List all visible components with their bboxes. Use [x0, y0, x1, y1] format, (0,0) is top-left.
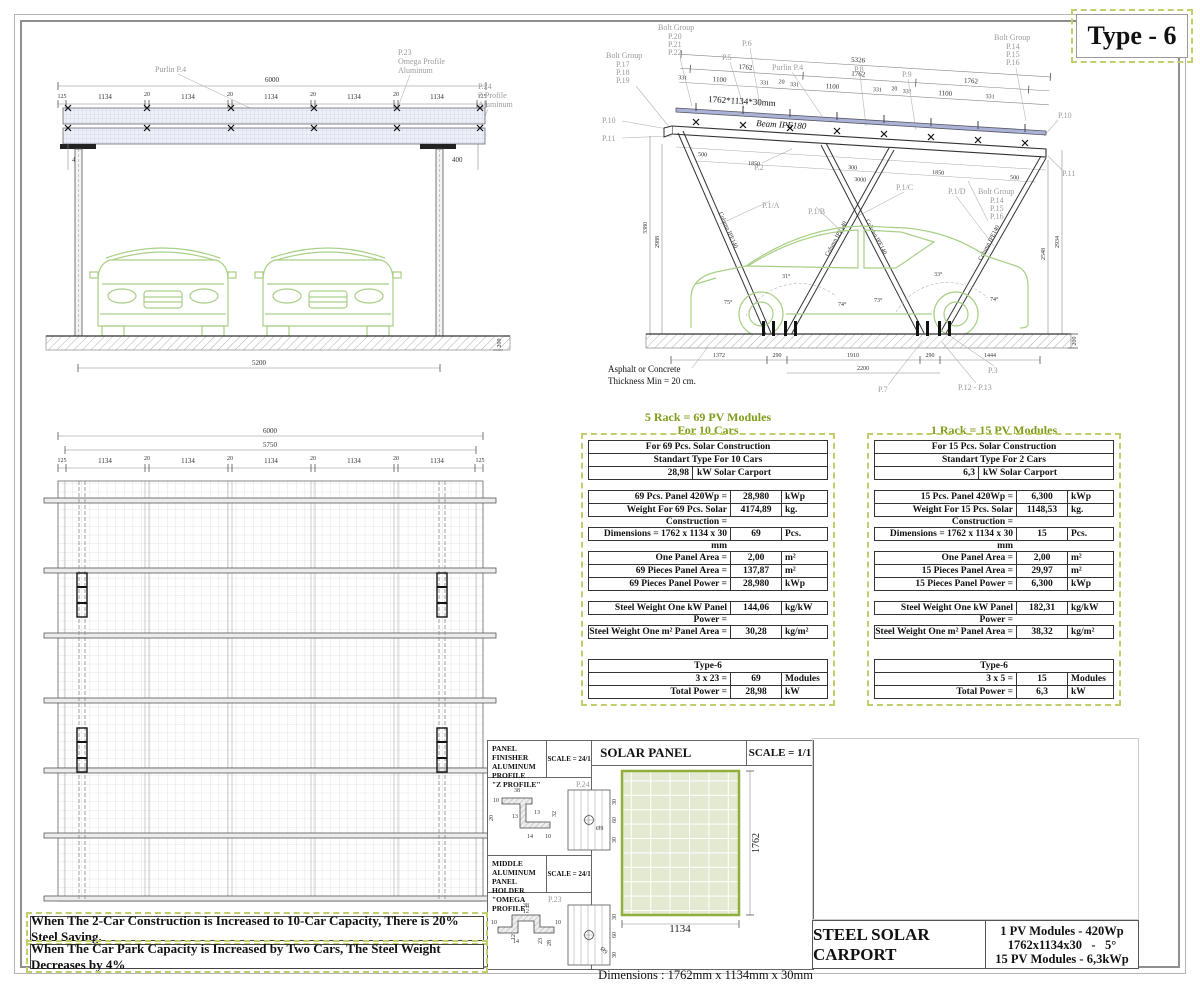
table-title: 5 Rack = 69 PV ModulesFor 10 Cars [588, 410, 828, 437]
dim-label: 14 [527, 834, 533, 840]
table-group: 15 Pcs. Panel 420Wp =6,300kWpWeight For … [874, 490, 1114, 517]
table-cell: kWp [1067, 578, 1113, 590]
ref-label: P.10 [602, 116, 616, 125]
ref-label: Bolt Group [606, 51, 642, 60]
table-cell: Total Power = [875, 686, 1016, 698]
spec-line: 1 PV Modules - 420Wp [1000, 924, 1123, 938]
beam-bracket [420, 144, 456, 149]
table-cell: kg. [781, 504, 827, 516]
front-columns [75, 149, 443, 336]
angle-label: 74° [838, 301, 847, 308]
side-bolt-groups: Bolt Group P.17 P.18 P.19 Bolt Group P.2… [606, 23, 1030, 221]
table-cell: Type-6 [589, 660, 827, 672]
ref-label: P.11 [602, 134, 615, 143]
table-group: Steel Weight One kW Panel Power =182,31k… [874, 601, 1114, 615]
table-cell: For 69 Pcs. Solar Construction [589, 441, 827, 453]
dim-label: 2200 [857, 366, 869, 372]
ref-label: P.22 [668, 48, 682, 57]
banner-text: When The Car Park Capacity is Increased … [31, 941, 483, 973]
dim-label: 1100 [938, 89, 953, 98]
front-ground [46, 336, 510, 350]
table-cell: Steel Weight One kW Panel Power = [875, 602, 1016, 614]
table-group: One Panel Area =2,00m²15 Pieces Panel Ar… [874, 551, 1114, 591]
table-cell: One Panel Area = [875, 552, 1016, 564]
dim-label: 32 [552, 811, 558, 817]
dim-label: 20 [489, 815, 495, 821]
ref-label: Bolt Group [658, 23, 694, 32]
table-cell: 29,97 [1016, 565, 1067, 577]
dim-label: 12 [523, 909, 529, 915]
dim-label: 1134 [181, 93, 195, 101]
table-cell: Dimensions = 1762 x 1134 x 30 mm [589, 528, 730, 540]
ref-label: P.10 [1058, 111, 1072, 120]
details-block: PANEL FINISHERALUMINUM PROFILE"Z PROFILE… [487, 740, 814, 970]
dim-label: 20 [393, 92, 399, 98]
table-row: Steel Weight One m² Panel Area =30,28kg/… [588, 625, 828, 639]
table-row: Standart Type For 10 Cars [588, 454, 828, 467]
table-group: One Panel Area =2,00m²69 Pieces Panel Ar… [588, 551, 828, 591]
dim-label: 331 [760, 80, 769, 87]
table-cell: 30,28 [730, 626, 781, 638]
ref-label: P.12 - P.13 [958, 383, 992, 392]
table-row: 69 Pieces Panel Power =28,980kWp [588, 578, 828, 591]
dim-label: 20 [891, 86, 897, 92]
table-group: Steel Weight One m² Panel Area =30,28kg/… [588, 625, 828, 639]
table-cell: m² [781, 552, 827, 564]
table-cell: 38,32 [1016, 626, 1067, 638]
car-front-view [90, 248, 236, 336]
ref-label: P.6 [742, 39, 752, 48]
table-cell: 2,00 [1016, 552, 1067, 564]
ref-label: P.9 [902, 70, 912, 79]
ref-label: P.19 [616, 76, 630, 85]
ref-label: Purlin P.4 [155, 65, 186, 74]
table-group: Steel Weight One kW Panel Power =144,06k… [588, 601, 828, 615]
dim-label: 125 [58, 458, 67, 464]
dim-label: 10 [555, 920, 561, 926]
table-cell: m² [1067, 552, 1113, 564]
table-cell: kWp [781, 578, 827, 590]
omega-profile-section: MIDDLE ALUMINUMPANEL HOLDER"OMEGA PROFIL… [488, 855, 591, 970]
table-cell: Steel Weight One kW Panel Power = [589, 602, 730, 614]
dim-label: 3000 [854, 177, 866, 184]
table-cell: Modules [781, 673, 827, 685]
dim-label: 331 [985, 94, 994, 101]
ref-label: P.5 [722, 53, 732, 62]
table-cell: Steel Weight One m² Panel Area = [875, 626, 1016, 638]
table-box: For 69 Pcs. Solar ConstructionStandart T… [588, 440, 828, 699]
banner-weight-decrease: When The Car Park Capacity is Increased … [30, 944, 484, 969]
side-elevation-drawing: 5326 1762 1762 1762 331 1100 331 20 331 … [596, 16, 1108, 408]
ref-label: P.23 [398, 48, 412, 57]
car-side-view [691, 226, 1028, 336]
ref-label: P.1/C [896, 183, 913, 192]
dim-label: 1134 [181, 457, 195, 465]
dim-label: 5750 [263, 441, 278, 449]
table-row: Weight For 69 Pcs. Solar Construction =4… [588, 504, 828, 517]
table-cell: 144,06 [730, 602, 781, 614]
banner-steel-saving: When The 2-Car Construction is Increased… [30, 916, 484, 941]
table-row: Total Power =28,98kW [588, 686, 828, 699]
ref-label: P.8 [854, 65, 864, 74]
dim-label: 1762 [738, 63, 753, 72]
dim-label: 331 [790, 82, 799, 89]
dim-label: 20 [310, 92, 316, 98]
car-front-view [255, 248, 401, 336]
dim-label: 20 [144, 92, 150, 98]
plan-dim-chain: 6000 5750 125 1134 20 1134 20 1134 20 11… [58, 427, 485, 472]
dim-label: 200 [1072, 337, 1078, 346]
omega-profile-scale: SCALE = 24/1 [546, 856, 591, 892]
dim-label: 1910 [847, 353, 859, 359]
table-group: Steel Weight One m² Panel Area =38,32kg/… [874, 625, 1114, 639]
table-cell: 6,3 [875, 467, 979, 479]
ref-label: P.24 [478, 82, 492, 91]
table-row: 28,98kW Solar Carport [588, 467, 828, 480]
table-row: 69 Pcs. Panel 420Wp =28,980kWp [588, 490, 828, 504]
table-69-modules: 5 Rack = 69 PV ModulesFor 10 CarsFor 69 … [588, 410, 828, 699]
angle-label: 33° [934, 271, 943, 278]
table-group: Dimensions = 1762 x 1134 x 30 mm69Pcs. [588, 527, 828, 541]
ground-note: Asphalt or Concrete [608, 364, 680, 374]
table-row: 15 Pieces Panel Area =29,97m² [874, 565, 1114, 578]
dim-label: 38 [514, 788, 520, 794]
table-row: One Panel Area =2,00m² [588, 551, 828, 565]
solar-panel-scale: SCALE = 1/1 [746, 741, 813, 765]
dim-label: 1134 [98, 457, 112, 465]
z-profile-section: PANEL FINISHERALUMINUM PROFILE"Z PROFILE… [488, 741, 591, 855]
spec-line: 1762x1134x30 - 5° [1008, 938, 1116, 952]
dim-label: 1762 [751, 833, 762, 853]
table-cell: kg/kW [781, 602, 827, 614]
solar-panel-detail: SOLAR PANEL SCALE = 1/1 1762 [592, 741, 813, 969]
table-cell: m² [1067, 565, 1113, 577]
plan-view-drawing: 6000 5750 125 1134 20 1134 20 1134 20 11… [38, 423, 502, 905]
dim-label: 290 [773, 353, 782, 359]
drawing-title: STEEL SOLAR CARPORT [813, 921, 985, 968]
dim-label: 20 [393, 456, 399, 462]
table-cell: kW [781, 686, 827, 698]
table-row: Type-6 [874, 659, 1114, 673]
dim-label: 1134 [669, 923, 691, 935]
table-cell: 15 Pieces Panel Area = [875, 565, 1016, 577]
dim-label: 1134 [264, 457, 278, 465]
table-cell: 3 x 5 = [875, 673, 1016, 685]
solar-panel-specs: Dimensions : 1762mm x 1134mm x 30mm Weig… [592, 933, 813, 969]
dim-label: 2988 [655, 236, 661, 248]
z-profile-scale: SCALE = 24/1 [546, 741, 591, 777]
table-cell: 15 Pcs. Panel 420Wp = [875, 491, 1016, 503]
z-profile-title: PANEL FINISHERALUMINUM PROFILE"Z PROFILE… [488, 741, 546, 777]
table-cell: 4174,89 [730, 504, 781, 516]
dim-label: 300 [848, 165, 857, 172]
table-cell: 3 x 23 = [589, 673, 730, 685]
table-cell: 28,980 [730, 491, 781, 503]
front-roof [60, 105, 485, 149]
table-group: Type-63 x 5 =15ModulesTotal Power =6,3kW [874, 659, 1114, 699]
table-cell: 15 Pieces Panel Power = [875, 578, 1016, 590]
table-cell: Weight For 69 Pcs. Solar Construction = [589, 504, 730, 516]
table-cell: For 15 Pcs. Solar Construction [875, 441, 1113, 453]
dim-label: 1134 [430, 457, 444, 465]
title-block: STEEL SOLAR CARPORT 1 PV Modules - 420Wp… [812, 920, 1139, 969]
table-row: Weight For 15 Pcs. Solar Construction =1… [874, 504, 1114, 517]
dim-label: 1444 [984, 353, 996, 359]
table-group: For 15 Pcs. Solar ConstructionStandart T… [874, 440, 1114, 480]
table-group: Type-63 x 23 =69ModulesTotal Power =28,9… [588, 659, 828, 699]
empty-frame [812, 738, 1139, 920]
table-row: Dimensions = 1762 x 1134 x 30 mm15Pcs. [874, 527, 1114, 541]
dim-label: 5326 [851, 56, 866, 65]
table-row: Steel Weight One kW Panel Power =182,31k… [874, 601, 1114, 615]
table-cell: 182,31 [1016, 602, 1067, 614]
panel-size-note: 1762*1134*30mm [708, 94, 776, 108]
drawing-spec-lines: 1 PV Modules - 420Wp 1762x1134x30 - 5° 1… [985, 921, 1138, 968]
table-cell: kg/kW [1067, 602, 1113, 614]
table-cell: 6,300 [1016, 578, 1067, 590]
dim-label: 1762 [964, 77, 979, 86]
angle-label: 74° [990, 296, 999, 303]
dim-label: 1134 [264, 93, 278, 101]
ref-label: P.16 [990, 212, 1004, 221]
table-cell: kW Solar Carport [693, 467, 827, 479]
dim-label: 20 [778, 79, 784, 85]
ref-label: Aluminum [398, 66, 433, 75]
table-group: 69 Pcs. Panel 420Wp =28,980kWpWeight For… [588, 490, 828, 517]
angle-label: 73° [874, 297, 883, 304]
beam-bracket [60, 144, 96, 149]
dim-label: 1850 [932, 170, 944, 177]
angle-label: 75° [724, 299, 733, 306]
table-cell: 69 Pcs. Panel 420Wp = [589, 491, 730, 503]
table-row: Standart Type For 2 Cars [874, 454, 1114, 467]
dim-label: 20 [227, 456, 233, 462]
table-15-modules: 1 Rack = 15 PV ModulesFor 15 Pcs. Solar … [874, 410, 1114, 699]
ref-label: P.16 [1006, 58, 1020, 67]
plan-panel-field [44, 481, 496, 901]
ref-label: Z Profile [478, 91, 507, 100]
ref-label: P.11 [1062, 169, 1075, 178]
table-cell: 28,98 [730, 686, 781, 698]
side-roof: 1762*1134*30mm Beam IPE180 [664, 94, 1046, 157]
drawing-sheet: Type - 6 [0, 0, 1200, 988]
table-cell: kg/m² [781, 626, 827, 638]
dim-label: 1134 [430, 93, 444, 101]
table-cell: 2,00 [730, 552, 781, 564]
ref-label: P.23 [548, 895, 562, 904]
table-cell: kWp [1067, 491, 1113, 503]
table-cell: 69 Pieces Panel Area = [589, 565, 730, 577]
dim-label: 23 [538, 938, 544, 944]
solar-panel-drawing: 1762 1134 [592, 766, 778, 932]
dim-label: 1100 [713, 75, 728, 84]
table-row: Type-6 [588, 659, 828, 673]
dim-label: 20 [310, 456, 316, 462]
dim-label: 20 [144, 456, 150, 462]
table-cell: Modules [1067, 673, 1113, 685]
table-cell: kWp [781, 491, 827, 503]
dim-label: 3380 [643, 222, 649, 234]
table-row: Steel Weight One kW Panel Power =144,06k… [588, 601, 828, 615]
table-cell: One Panel Area = [589, 552, 730, 564]
panel-dimensions: Dimensions : 1762mm x 1134mm x 30mm [598, 967, 813, 984]
dim-label: 6000 [263, 427, 278, 435]
table-cell: Standart Type For 10 Cars [589, 454, 827, 466]
table-cell: 137,87 [730, 565, 781, 577]
table-row: 15 Pcs. Panel 420Wp =6,300kWp [874, 490, 1114, 504]
dim-label: 28 [547, 940, 553, 946]
table-cell: 69 Pieces Panel Power = [589, 578, 730, 590]
table-cell: 15 [1016, 528, 1067, 540]
table-cell: kW Solar Carport [979, 467, 1113, 479]
ref-label: Purlin P.4 [772, 63, 803, 72]
dim-label: 10 [545, 834, 551, 840]
table-row: One Panel Area =2,00m² [874, 551, 1114, 565]
dim-label: 1372 [713, 353, 725, 359]
dim-label: 500 [698, 152, 707, 159]
table-cell: kg. [1067, 504, 1113, 516]
front-elevation-drawing: 6000 125 1134 20 1134 20 1134 20 1134 20… [38, 46, 520, 400]
table-row: Total Power =6,3kW [874, 686, 1114, 699]
table-cell: 1148,53 [1016, 504, 1067, 516]
dim-label: 20 [227, 92, 233, 98]
angle-label: 31° [782, 273, 791, 280]
front-dim-chain: 6000 125 1134 20 1134 20 1134 20 1134 20… [58, 76, 487, 108]
ref-label: P.1/B [808, 207, 825, 216]
ref-label: P.3 [988, 366, 998, 375]
dim-label: 30 [612, 952, 618, 958]
table-row: 69 Pieces Panel Area =137,87m² [588, 565, 828, 578]
profile-details: PANEL FINISHERALUMINUM PROFILE"Z PROFILE… [488, 741, 592, 969]
table-row: Steel Weight One m² Panel Area =38,32kg/… [874, 625, 1114, 639]
ref-label: P.7 [878, 385, 888, 394]
table-cell: 28,980 [730, 578, 781, 590]
table-cell: Pcs. [1067, 528, 1113, 540]
solar-panel-title: SOLAR PANEL [592, 741, 746, 765]
spec-line: 15 PV Modules - 6,3kWp [995, 952, 1128, 966]
table-box: For 15 Pcs. Solar ConstructionStandart T… [874, 440, 1114, 699]
table-row: For 15 Pcs. Solar Construction [874, 440, 1114, 454]
beam-label: Beam IPE180 [756, 118, 807, 131]
dim-label: 1850 [748, 161, 760, 168]
table-cell: Pcs. [781, 528, 827, 540]
dim-label: 6000 [265, 76, 280, 84]
dim-label: 290 [926, 353, 935, 359]
table-row: Dimensions = 1762 x 1134 x 30 mm69Pcs. [588, 527, 828, 541]
dim-label: 400 [452, 156, 463, 164]
ref-label: P.24 [576, 780, 590, 789]
dim-label: 14 [513, 939, 519, 945]
ref-label: P.1/D [948, 187, 966, 196]
table-cell: m² [781, 565, 827, 577]
table-row: 3 x 23 =69Modules [588, 673, 828, 686]
side-angle-dims: 31° 33° 75° 74° 73° 74° [724, 271, 999, 316]
table-cell: kg/m² [1067, 626, 1113, 638]
table-cell: Standart Type For 2 Cars [875, 454, 1113, 466]
table-row: 6,3kW Solar Carport [874, 467, 1114, 480]
dim-label: 331 [873, 87, 882, 94]
table-row: For 69 Pcs. Solar Construction [588, 440, 828, 454]
dim-label: 1134 [347, 457, 361, 465]
table-cell: kW [1067, 686, 1113, 698]
dim-label: 500 [1010, 175, 1019, 182]
table-cell: 69 [730, 673, 781, 685]
table-cell: 69 [730, 528, 781, 540]
table-cell: 6,3 [1016, 686, 1067, 698]
ref-label: Omega Profile [398, 57, 445, 66]
table-cell: Total Power = [589, 686, 730, 698]
dim-label: 1134 [98, 93, 112, 101]
table-cell: 28,98 [589, 467, 693, 479]
omega-profile-title: MIDDLE ALUMINUMPANEL HOLDER"OMEGA PROFIL… [488, 856, 546, 892]
dim-label: 1100 [825, 82, 840, 91]
dim-label: 1134 [347, 93, 361, 101]
table-row: 15 Pieces Panel Power =6,300kWp [874, 578, 1114, 591]
dim-label: 2548 [1041, 248, 1047, 260]
dim-label: 10 [493, 798, 499, 804]
dim-label: 2934 [1055, 236, 1061, 248]
ground-note: Thickness Min = 20 cm. [608, 376, 696, 386]
table-title: 1 Rack = 15 PV Modules [874, 410, 1114, 437]
dim-label: 125 [476, 458, 485, 464]
dim-label: 5200 [252, 359, 267, 367]
dim-label: 200 [497, 339, 503, 348]
table-cell: 6,300 [1016, 491, 1067, 503]
dim-label: 125 [58, 94, 67, 100]
front-400-dims: 400 400 [68, 144, 478, 170]
dim-label: 13 [512, 814, 518, 820]
dim-label: 13 [534, 810, 540, 816]
ref-label: P.1/A [762, 201, 780, 210]
ref-label: Bolt Group [994, 33, 1030, 42]
table-row: 3 x 5 =15Modules [874, 673, 1114, 686]
table-group: Dimensions = 1762 x 1134 x 30 mm15Pcs. [874, 527, 1114, 541]
table-cell: Weight For 15 Pcs. Solar Construction = [875, 504, 1016, 516]
ref-label: Bolt Group [978, 187, 1014, 196]
table-cell: Type-6 [875, 660, 1113, 672]
table-cell: 15 [1016, 673, 1067, 685]
table-cell: Steel Weight One m² Panel Area = [589, 626, 730, 638]
table-cell: Dimensions = 1762 x 1134 x 30 mm [875, 528, 1016, 540]
table-group: For 69 Pcs. Solar ConstructionStandart T… [588, 440, 828, 480]
side-ground [646, 321, 1071, 348]
dim-label: 10 [491, 920, 497, 926]
